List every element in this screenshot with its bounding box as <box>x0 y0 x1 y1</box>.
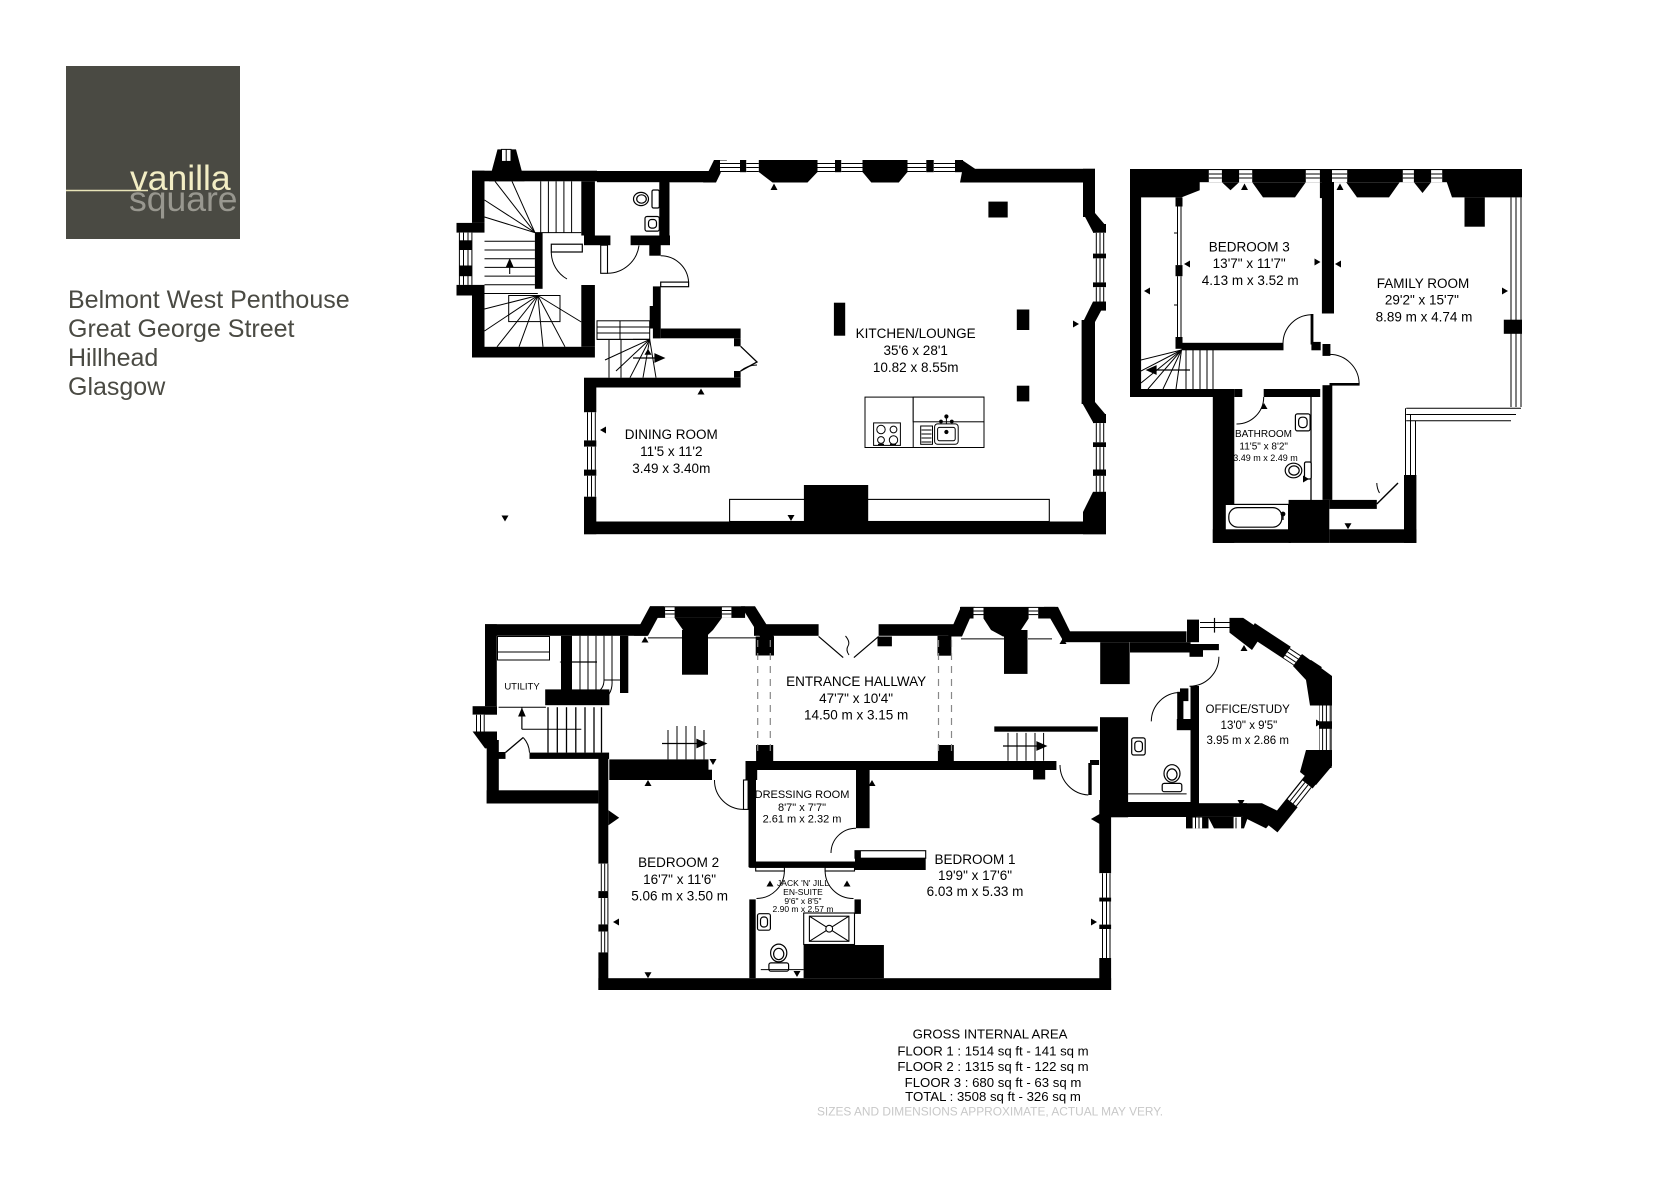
svg-text:Belmont West Penthouse: Belmont West Penthouse <box>68 286 350 314</box>
svg-text:BATHROOM: BATHROOM <box>1235 429 1292 440</box>
svg-text:FLOOR 1 : 1514 sq ft - 141 sq: FLOOR 1 : 1514 sq ft - 141 sq m <box>897 1043 1088 1058</box>
svg-text:square: square <box>129 179 238 219</box>
svg-text:Hillhead: Hillhead <box>68 344 158 372</box>
svg-text:BEDROOM 3: BEDROOM 3 <box>1209 240 1290 255</box>
svg-text:13'7" x 11'7": 13'7" x 11'7" <box>1213 256 1286 271</box>
svg-text:2.61 m x 2.32 m: 2.61 m x 2.32 m <box>763 814 842 826</box>
svg-text:10.82 x 8.55m: 10.82 x 8.55m <box>873 360 959 375</box>
svg-text:19'9" x 17'6": 19'9" x 17'6" <box>938 868 1012 883</box>
svg-text:29'2" x 15'7": 29'2" x 15'7" <box>1385 293 1459 308</box>
svg-text:FAMILY ROOM: FAMILY ROOM <box>1377 276 1470 291</box>
svg-text:35'6 x 28'1: 35'6 x 28'1 <box>883 343 947 358</box>
svg-text:16'7" x 11'6": 16'7" x 11'6" <box>643 872 716 887</box>
svg-text:UTILITY: UTILITY <box>504 682 540 693</box>
svg-text:FLOOR 2 : 1315 sq ft - 122 sq: FLOOR 2 : 1315 sq ft - 122 sq m <box>897 1059 1088 1074</box>
svg-text:BEDROOM 2: BEDROOM 2 <box>638 855 719 870</box>
svg-text:3.49 m x 2.49 m: 3.49 m x 2.49 m <box>1233 453 1298 463</box>
svg-text:14.50 m x 3.15 m: 14.50 m x 3.15 m <box>804 708 908 723</box>
svg-text:4.13 m x 3.52 m: 4.13 m x 3.52 m <box>1202 273 1299 288</box>
svg-text:TOTAL : 3508 sq ft - 326 sq m: TOTAL : 3508 sq ft - 326 sq m <box>905 1089 1081 1104</box>
svg-text:DRESSING ROOM: DRESSING ROOM <box>755 789 850 801</box>
svg-text:SIZES AND DIMENSIONS APPROXIMA: SIZES AND DIMENSIONS APPROXIMATE, ACTUAL… <box>817 1105 1163 1119</box>
svg-text:OFFICE/STUDY: OFFICE/STUDY <box>1206 704 1291 716</box>
svg-text:ENTRANCE HALLWAY: ENTRANCE HALLWAY <box>786 674 926 689</box>
svg-text:Great George Street: Great George Street <box>68 315 295 343</box>
svg-text:5.06 m x 3.50 m: 5.06 m x 3.50 m <box>631 889 728 904</box>
svg-text:KITCHEN/LOUNGE: KITCHEN/LOUNGE <box>856 326 976 341</box>
svg-text:3.49 x 3.40m: 3.49 x 3.40m <box>632 461 710 476</box>
svg-text:2.90 m x 2.57 m: 2.90 m x 2.57 m <box>773 904 834 914</box>
svg-text:DINING ROOM: DINING ROOM <box>625 427 718 442</box>
svg-text:BEDROOM 1: BEDROOM 1 <box>934 852 1015 867</box>
svg-text:GROSS INTERNAL AREA: GROSS INTERNAL AREA <box>913 1026 1068 1041</box>
svg-text:13'0" x 9'5": 13'0" x 9'5" <box>1221 720 1278 732</box>
svg-text:FLOOR 3 : 680 sq ft - 63 sq m: FLOOR 3 : 680 sq ft - 63 sq m <box>905 1075 1082 1090</box>
svg-text:Glasgow: Glasgow <box>68 373 166 401</box>
svg-text:47'7" x 10'4": 47'7" x 10'4" <box>819 691 893 706</box>
svg-text:8.89 m x 4.74 m: 8.89 m x 4.74 m <box>1376 310 1473 325</box>
svg-text:6.03 m x 5.33 m: 6.03 m x 5.33 m <box>927 884 1024 899</box>
svg-text:11'5" x 8'2": 11'5" x 8'2" <box>1239 442 1288 453</box>
svg-text:11'5 x 11'2: 11'5 x 11'2 <box>640 444 702 459</box>
svg-text:3.95 m x 2.86 m: 3.95 m x 2.86 m <box>1206 735 1288 747</box>
svg-text:8'7" x 7'7": 8'7" x 7'7" <box>778 802 826 814</box>
